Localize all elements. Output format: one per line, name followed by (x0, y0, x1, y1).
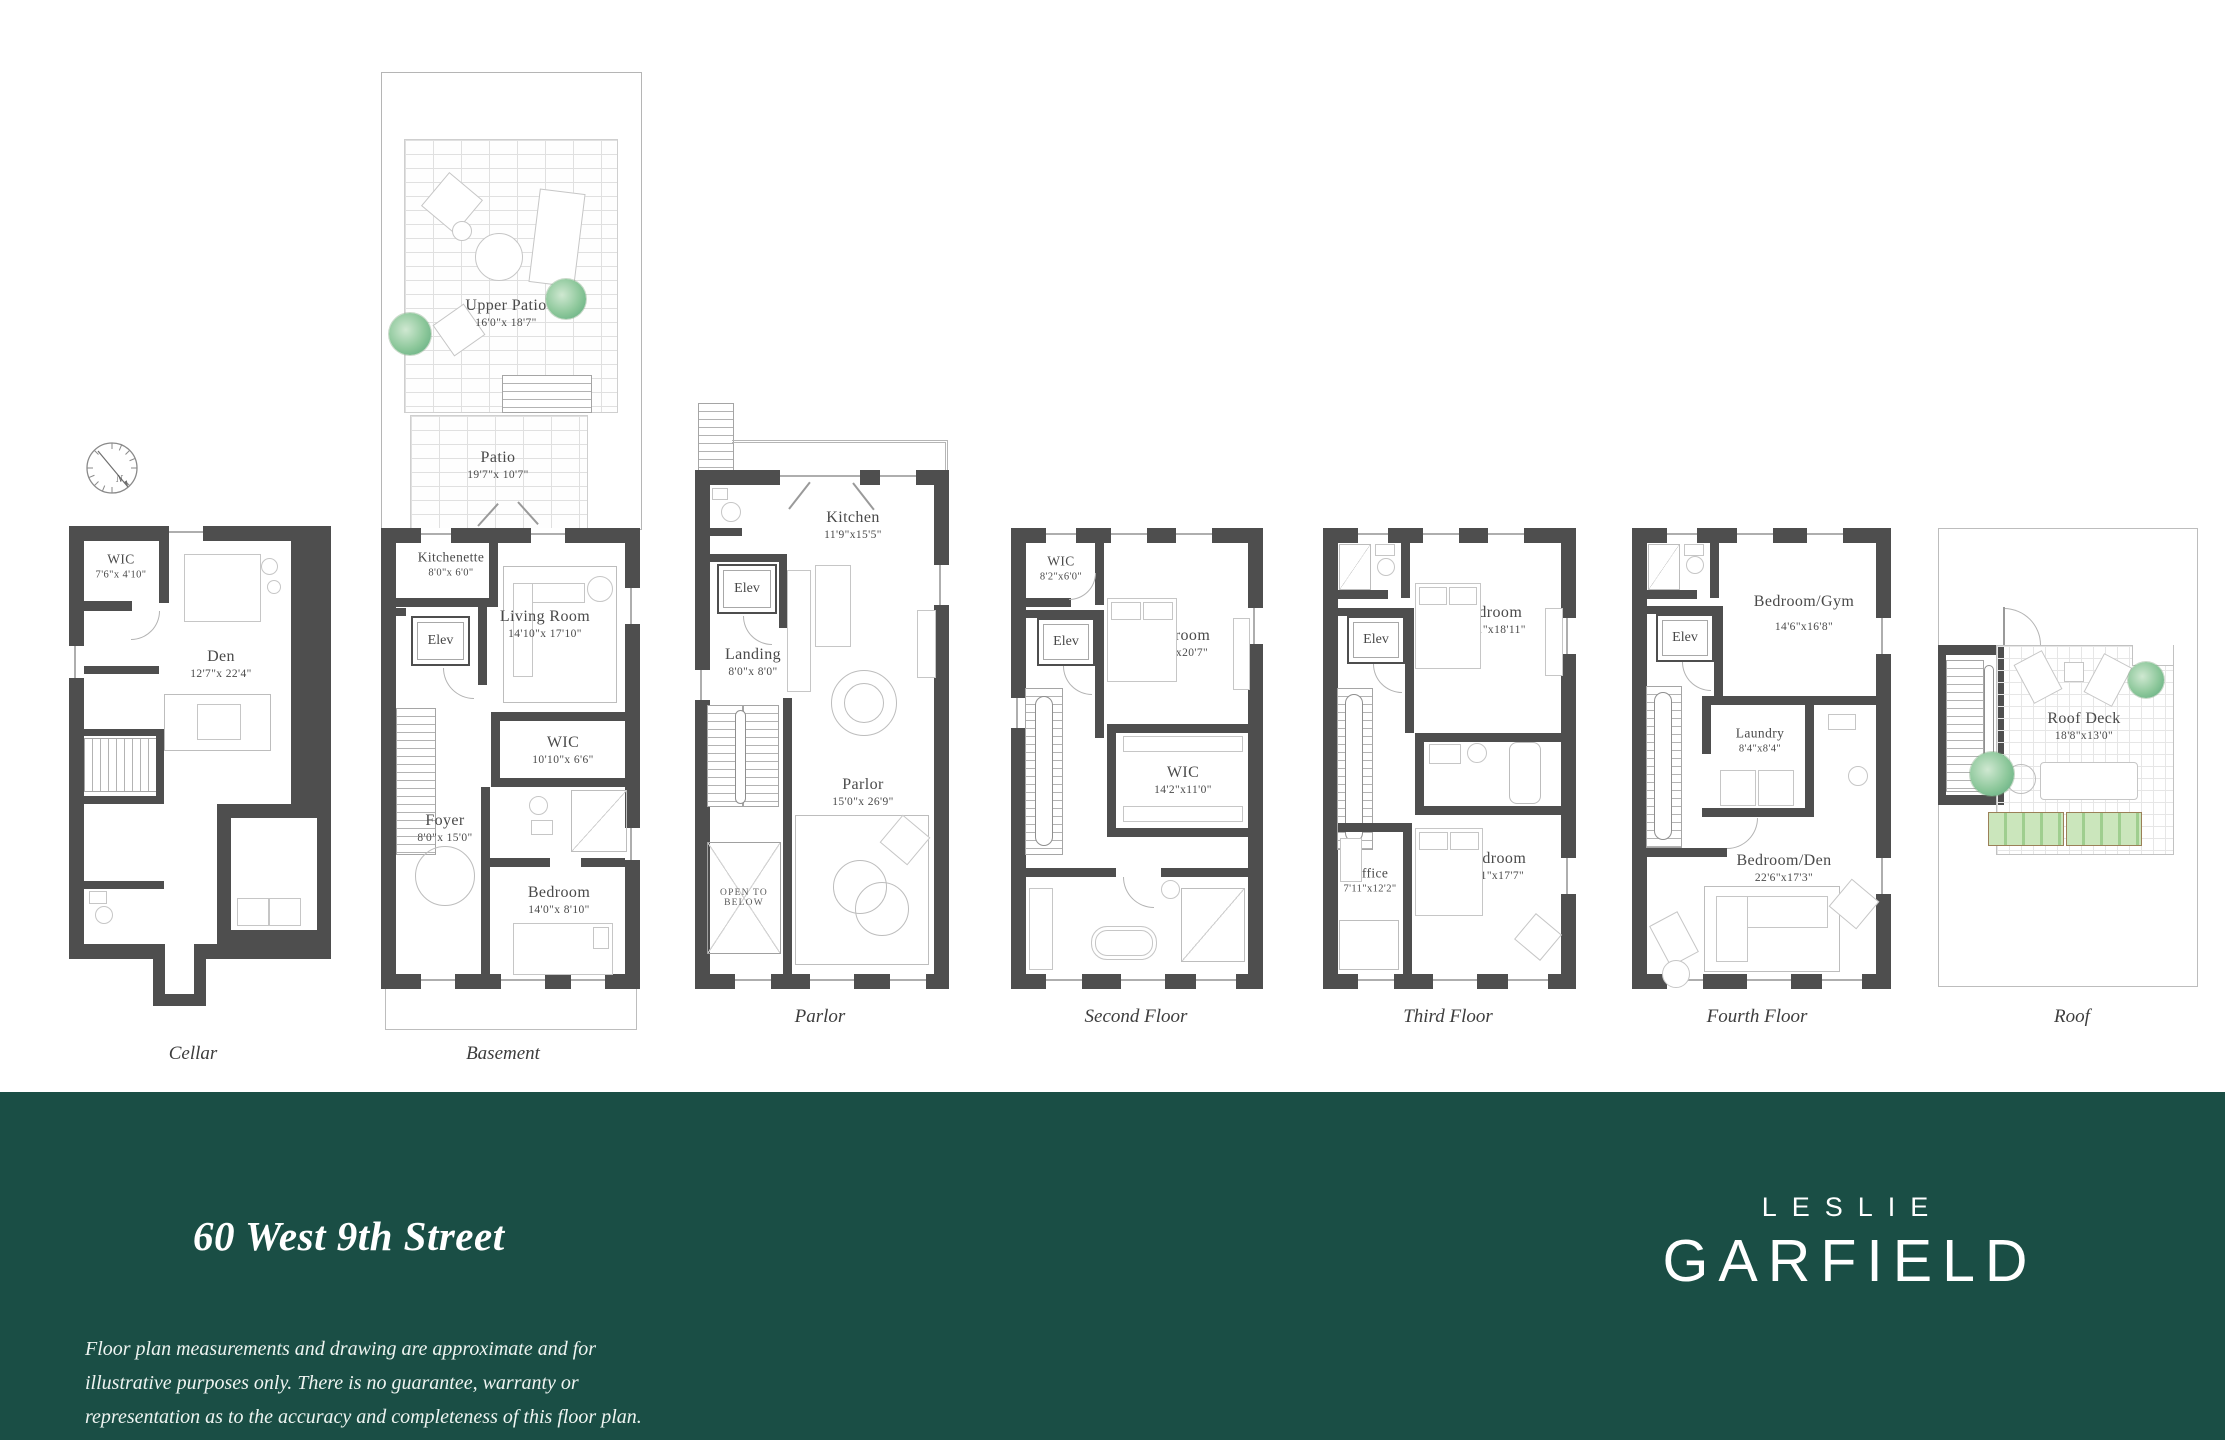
wall (491, 778, 625, 787)
wall (1338, 823, 1408, 832)
wall (159, 541, 169, 603)
washer (1720, 770, 1756, 806)
window (1822, 974, 1862, 989)
room-name: Bedroom/Den (1736, 852, 1831, 870)
plant (546, 279, 586, 319)
staircase (743, 705, 779, 807)
wall (779, 554, 787, 628)
window (780, 470, 860, 485)
window (1121, 974, 1165, 989)
pillow (1419, 832, 1448, 850)
room-label: Parlor 15'0"x 26'9" (832, 776, 893, 808)
room-label: Foyer 8'0"x 15'0" (417, 812, 472, 844)
closet-shelf (1123, 806, 1243, 822)
room-dims: 15'0"x 26'9" (832, 796, 893, 808)
room-name: Den (190, 648, 251, 666)
room-label: Den 12'7"x 22'4" (190, 648, 251, 680)
room-label: Laundry 8'4"x8'4" (1736, 726, 1785, 755)
planter-box (1988, 812, 2064, 846)
room-label: WIC 10'10"x 6'6" (532, 734, 593, 766)
floor-caption: Third Floor (1403, 1006, 1493, 1028)
vanity (1029, 888, 1053, 970)
elevator: Elev (1656, 614, 1714, 662)
wall (1415, 733, 1424, 815)
basement-stoop-outline (385, 989, 637, 1030)
window (1667, 528, 1697, 543)
toilet (1686, 556, 1704, 574)
wall (84, 881, 164, 889)
sofa (184, 554, 261, 622)
kitchen-counter (787, 570, 811, 692)
wall (84, 796, 164, 804)
wall (1403, 823, 1412, 974)
room-name: Bedroom (528, 884, 590, 902)
wall (396, 598, 496, 607)
wall (1107, 828, 1258, 837)
toilet (529, 796, 548, 815)
armchair (855, 882, 909, 936)
room-dims: 14'2"x11'0" (1154, 784, 1212, 796)
window (1176, 528, 1212, 543)
floor-caption: Roof (2054, 1006, 2090, 1028)
window (1011, 698, 1026, 728)
compass-north-label: N (115, 474, 124, 485)
wall (1026, 598, 1071, 607)
floor-plan-cellar: WIC 7'6"x 4'10" Den 12'7"x 22'4" (69, 526, 331, 959)
range (917, 610, 936, 678)
window (1433, 974, 1477, 989)
wall (491, 712, 500, 787)
toilet (1467, 743, 1487, 763)
toilet (95, 906, 113, 924)
staircase (84, 738, 158, 792)
elevator: Elev (1037, 618, 1095, 666)
room-label: Roof Deck 18'8"x13'0" (2047, 710, 2120, 742)
window (1807, 528, 1843, 543)
disclaimer-line: illustrative purposes only. There is no … (85, 1366, 642, 1400)
elevator: Elev (717, 564, 777, 614)
floor-caption: Second Floor (1085, 1006, 1188, 1028)
wall (1026, 868, 1116, 877)
stair-well (165, 944, 194, 994)
wall (1805, 696, 1814, 817)
disclaimer: Floor plan measurements and drawing are … (85, 1332, 642, 1434)
window (501, 974, 545, 989)
brand-name-bottom: GARFIELD (1652, 1227, 2037, 1295)
elevator-label: Elev (428, 633, 454, 649)
stoop-path-line (732, 440, 948, 473)
wall (1415, 806, 1570, 815)
bench (2040, 762, 2138, 800)
window (1876, 858, 1891, 894)
wall (1702, 696, 1814, 705)
floorplan-sheet: N WIC 7'6"x 4'10" Den 12'7"x 22'4" (0, 0, 2225, 1440)
floor-plan-fourth: Bedroom/Gym 14'6"x16'8" Elev Laundry 8'4… (1632, 528, 1891, 989)
side-table (267, 580, 281, 594)
wall (710, 528, 742, 536)
patio-table (475, 233, 523, 281)
window (1358, 528, 1388, 543)
window (695, 670, 710, 700)
room-label: Patio 19'7"x 10'7" (467, 449, 528, 481)
window (1046, 974, 1082, 989)
cabinet (269, 898, 301, 926)
window (810, 974, 854, 989)
wall (489, 543, 498, 607)
room-label: Living Room 14'10"x 17'10" (500, 608, 590, 640)
room-name: WIC (532, 734, 593, 752)
shower (1648, 544, 1680, 590)
room-label: Bedroom 14'0"x 8'10" (528, 884, 590, 916)
wall (1647, 590, 1697, 599)
window (571, 974, 605, 989)
wall (84, 666, 159, 674)
room-dims: 16'0"x 18'7" (465, 317, 546, 329)
wall (396, 608, 406, 616)
wall (710, 554, 780, 562)
patio-stool (452, 221, 472, 241)
window (880, 470, 916, 485)
brand-logo: LESLIE GARFIELD (1652, 1192, 2037, 1295)
window (625, 588, 640, 624)
wall (491, 712, 625, 721)
wall (1338, 590, 1388, 599)
room-dims: 8'0"x 6'0" (418, 568, 485, 579)
window (735, 974, 771, 989)
window (1358, 974, 1394, 989)
window (1248, 608, 1263, 644)
toilet (1848, 766, 1868, 786)
sink (1375, 544, 1395, 556)
room-name: Kitchenette (418, 550, 485, 566)
shower (1181, 888, 1245, 962)
stair-railing (1654, 692, 1672, 840)
brand-name-top: LESLIE (1652, 1192, 2037, 1223)
room-name: Laundry (1736, 726, 1785, 742)
room-dims: 8'4"x8'4" (1736, 744, 1785, 755)
floor-caption: Fourth Floor (1707, 1006, 1808, 1028)
rug (1339, 920, 1399, 970)
floor-plan-second: WIC 8'2"x6'0" Bedroom 14'9"x20'7" Elev W… (1011, 528, 1263, 989)
wall (1107, 724, 1258, 733)
toilet (721, 502, 741, 522)
floor-plan-basement: Kitchenette 8'0"x 6'0" Living Room 14'10… (381, 528, 640, 989)
elevator-label: Elev (734, 581, 760, 597)
stoop-stairs (698, 403, 734, 471)
window (1111, 528, 1147, 543)
sink (1828, 714, 1856, 730)
room-name: Bedroom/Gym (1754, 593, 1854, 611)
disclaimer-line: representation as to the accuracy and co… (85, 1400, 642, 1434)
pillow (1450, 832, 1479, 850)
room-dims: 14'6"x16'8" (1754, 621, 1854, 633)
basement-outdoor-area: Upper Patio 16'0"x 18'7" Patio 19'7"x 10… (381, 72, 642, 530)
window (1046, 528, 1076, 543)
dining-table-center (844, 683, 884, 723)
wall (1095, 543, 1104, 605)
wall (1338, 608, 1408, 616)
stair-railing (1035, 696, 1053, 846)
room-label: Kitchenette 8'0"x 6'0" (418, 550, 485, 579)
room-dims: 8'0"x 8'0" (725, 666, 781, 678)
room-dims: 22'6"x17'3" (1736, 872, 1831, 884)
pillow (593, 927, 609, 949)
room-name: Landing (725, 646, 781, 664)
room-label: Upper Patio 16'0"x 18'7" (465, 297, 546, 329)
elevator-label: Elev (1672, 630, 1698, 646)
wall (1647, 848, 1727, 857)
window (1876, 618, 1891, 654)
wall (490, 858, 550, 867)
property-address: 60 West 9th Street (193, 1212, 505, 1260)
window (421, 528, 451, 543)
plant (2128, 662, 2164, 698)
window (1196, 974, 1236, 989)
door-leaf (2003, 607, 2005, 645)
window (69, 646, 84, 678)
room-name: Living Room (500, 608, 590, 626)
window (1737, 528, 1773, 543)
room-name: WIC (1040, 554, 1082, 570)
elevator: Elev (1347, 616, 1405, 664)
floor-plan-parlor: Kitchen 11'9"x15'5" Elev Landing 8'0"x 8… (695, 470, 949, 989)
room-name: Foyer (417, 812, 472, 830)
room-dims: 19'7"x 10'7" (467, 469, 528, 481)
wall (1107, 724, 1116, 837)
room-label: Bedroom/Den 22'6"x17'3" (1736, 852, 1831, 884)
wall (783, 698, 792, 974)
bathtub (1509, 742, 1541, 804)
side-table (261, 558, 278, 575)
elevator-label: Elev (1053, 634, 1079, 650)
pillow (1111, 602, 1141, 620)
room-dims: 8'2"x6'0" (1040, 572, 1082, 583)
dryer (1758, 770, 1794, 806)
room-name: Parlor (832, 776, 893, 794)
floor-plan-third: Bedroom 14'11"x18'11" Elev Bedroom 15'1"… (1323, 528, 1576, 989)
shower (1339, 544, 1371, 590)
room-dims: 14'0"x 8'10" (528, 904, 590, 916)
wall (156, 729, 164, 801)
sink (1684, 544, 1704, 556)
window (1561, 858, 1576, 894)
elevator-label: Elev (1363, 632, 1389, 648)
wall (481, 787, 490, 974)
bathtub (1091, 926, 1157, 960)
armchair (587, 576, 613, 602)
window (169, 526, 203, 541)
floor-caption: Cellar (169, 1043, 218, 1065)
wall (1702, 808, 1814, 817)
window (1488, 528, 1524, 543)
room-label: Bedroom/Gym 14'6"x16'8" (1754, 593, 1854, 633)
window (1508, 974, 1548, 989)
room-name: Upper Patio (465, 297, 546, 315)
pillow (1419, 587, 1447, 605)
window (890, 974, 926, 989)
room-name: Roof Deck (2047, 710, 2120, 728)
pillow (1143, 602, 1173, 620)
wall (1415, 733, 1570, 742)
wall (1647, 606, 1717, 614)
elevator: Elev (411, 616, 470, 666)
wall (84, 729, 156, 736)
room-dims: 12'7"x 22'4" (190, 668, 251, 680)
sink (89, 891, 107, 904)
plant (1970, 752, 2014, 796)
kitchen-island (815, 565, 851, 647)
side-table (1662, 960, 1690, 988)
room-label: Kitchen 11'9"x15'5" (824, 509, 882, 541)
window-seat (1233, 618, 1250, 690)
compass-icon: N (82, 438, 142, 498)
room-dims: 11'9"x15'5" (824, 529, 882, 541)
wall (1710, 543, 1719, 598)
room-name: WIC (1154, 764, 1212, 782)
wall (1714, 606, 1723, 696)
wall (1702, 696, 1711, 754)
window (1747, 974, 1791, 989)
wall (1401, 543, 1410, 598)
room-dims: 10'10"x 6'6" (532, 754, 593, 766)
wall (478, 607, 487, 685)
room-name: WIC (96, 552, 147, 568)
window (934, 565, 949, 605)
wall (1405, 608, 1414, 733)
room-label: WIC 14'2"x11'0" (1154, 764, 1212, 796)
stair-railing (1345, 694, 1363, 842)
window (421, 974, 455, 989)
window (1561, 618, 1576, 654)
window (531, 528, 565, 543)
room-name: Kitchen (824, 509, 882, 527)
sink (531, 820, 553, 835)
shower (571, 790, 627, 852)
room-dims: 7'6"x 4'10" (96, 570, 147, 581)
wall (1026, 610, 1096, 618)
room-dims: 18'8"x13'0" (2047, 730, 2120, 742)
room-dims: 14'10"x 17'10" (500, 628, 590, 640)
room-label: WIC 7'6"x 4'10" (96, 552, 147, 581)
side-table (2064, 662, 2084, 682)
window (625, 828, 640, 860)
cabinet (237, 898, 269, 926)
window (1423, 528, 1459, 543)
room-label: Landing 8'0"x 8'0" (725, 646, 781, 678)
pillow (1449, 587, 1477, 605)
stair-railing (735, 710, 746, 804)
disclaimer-line: Floor plan measurements and drawing are … (85, 1332, 642, 1366)
wall (84, 601, 132, 611)
toilet (1377, 558, 1395, 576)
room-dims: 8'0"x 15'0" (417, 832, 472, 844)
wall (1161, 868, 1258, 877)
room-dims: 7'11"x12'2" (1343, 884, 1396, 895)
room-name: Patio (467, 449, 528, 467)
table (197, 704, 241, 740)
plant (389, 313, 431, 355)
planter-box (2066, 812, 2142, 846)
closet-shelf (1123, 736, 1243, 752)
desk (1340, 838, 1362, 882)
wall (581, 858, 625, 867)
patio-steps (502, 375, 592, 413)
sink (712, 488, 728, 500)
open-to-below: OPEN TO BELOW (707, 842, 781, 954)
room-label: WIC 8'2"x6'0" (1040, 554, 1082, 583)
wall (1095, 610, 1104, 738)
wall (1814, 696, 1876, 705)
toilet (1161, 880, 1180, 899)
sectional-sofa (1716, 896, 1748, 962)
window-seat (1545, 608, 1563, 676)
round-rug (415, 846, 475, 906)
floor-caption: Basement (466, 1043, 540, 1065)
floor-caption: Parlor (795, 1006, 846, 1028)
vanity (1429, 744, 1461, 764)
